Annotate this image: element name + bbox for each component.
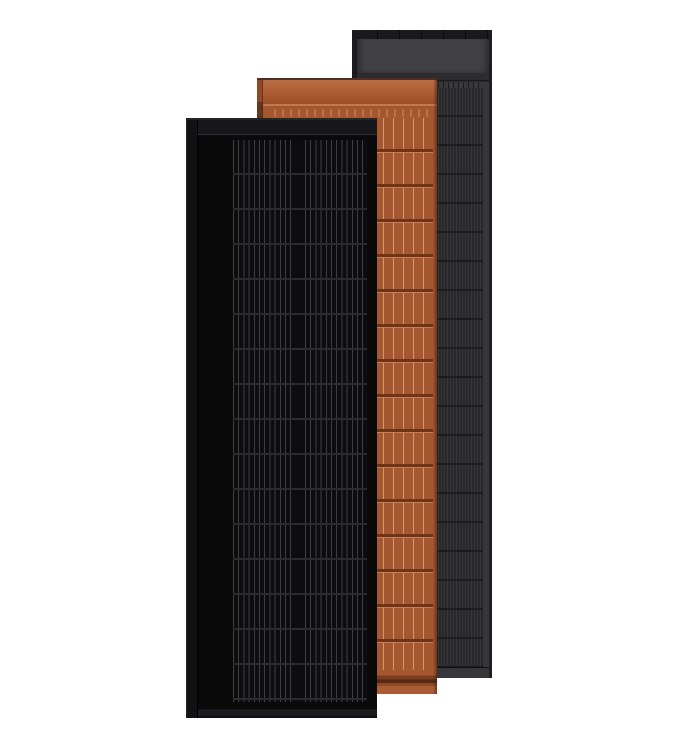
black-panel-rail-left bbox=[186, 120, 198, 718]
gray-panel-mount-header bbox=[357, 39, 489, 73]
black-panel-row-lines bbox=[233, 140, 367, 702]
product-render-stage bbox=[0, 0, 684, 748]
black-panel-cell-grid bbox=[233, 140, 367, 702]
solar-panel-black bbox=[186, 118, 377, 718]
terracotta-panel-edge-right bbox=[433, 80, 437, 694]
gray-panel-edge-right bbox=[489, 30, 492, 678]
black-panel-frame-bottom bbox=[198, 708, 377, 718]
gray-panel-top-cap bbox=[355, 30, 490, 39]
terracotta-panel-highlight-line bbox=[263, 104, 437, 106]
terracotta-panel-header bbox=[263, 80, 437, 104]
terracotta-panel-tick-row bbox=[269, 109, 429, 117]
black-panel-header bbox=[198, 120, 377, 135]
